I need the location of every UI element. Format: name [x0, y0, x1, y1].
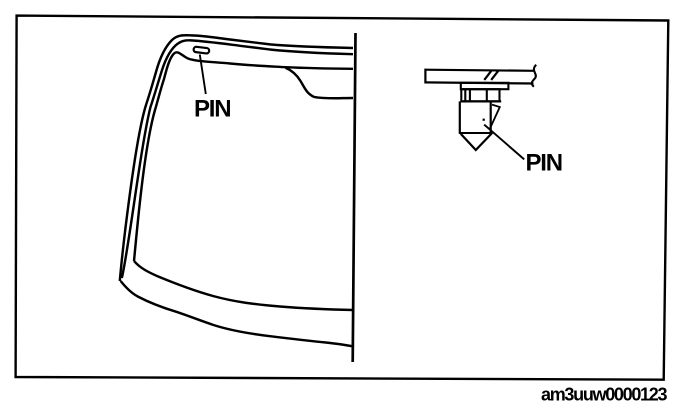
svg-text:am3uuw0000123: am3uuw0000123: [541, 385, 667, 405]
svg-text:PIN: PIN: [526, 150, 562, 177]
svg-text:PIN: PIN: [194, 96, 230, 123]
